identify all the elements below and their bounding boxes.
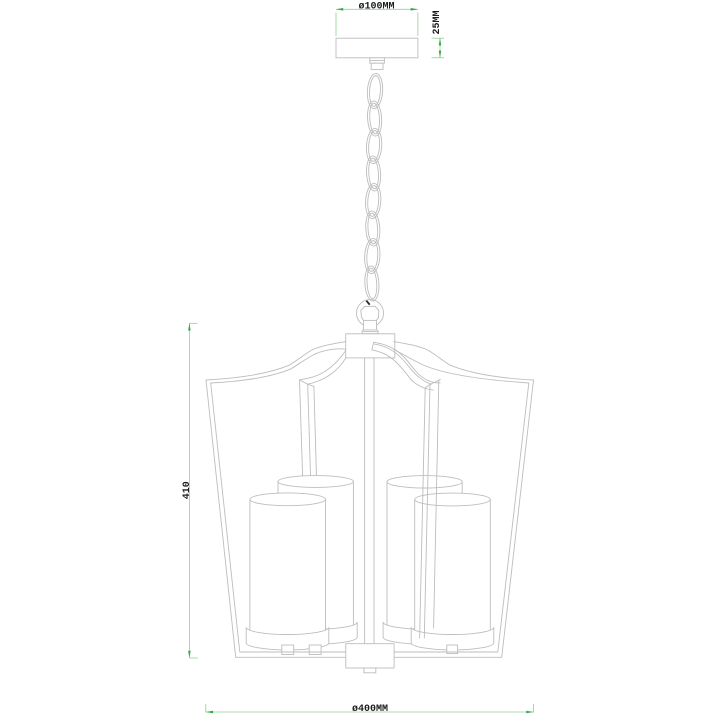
svg-text:410: 410 <box>182 481 193 499</box>
svg-text:25MM: 25MM <box>432 10 443 34</box>
svg-text:ø100MM: ø100MM <box>358 1 394 12</box>
svg-text:ø400MM: ø400MM <box>352 704 388 715</box>
